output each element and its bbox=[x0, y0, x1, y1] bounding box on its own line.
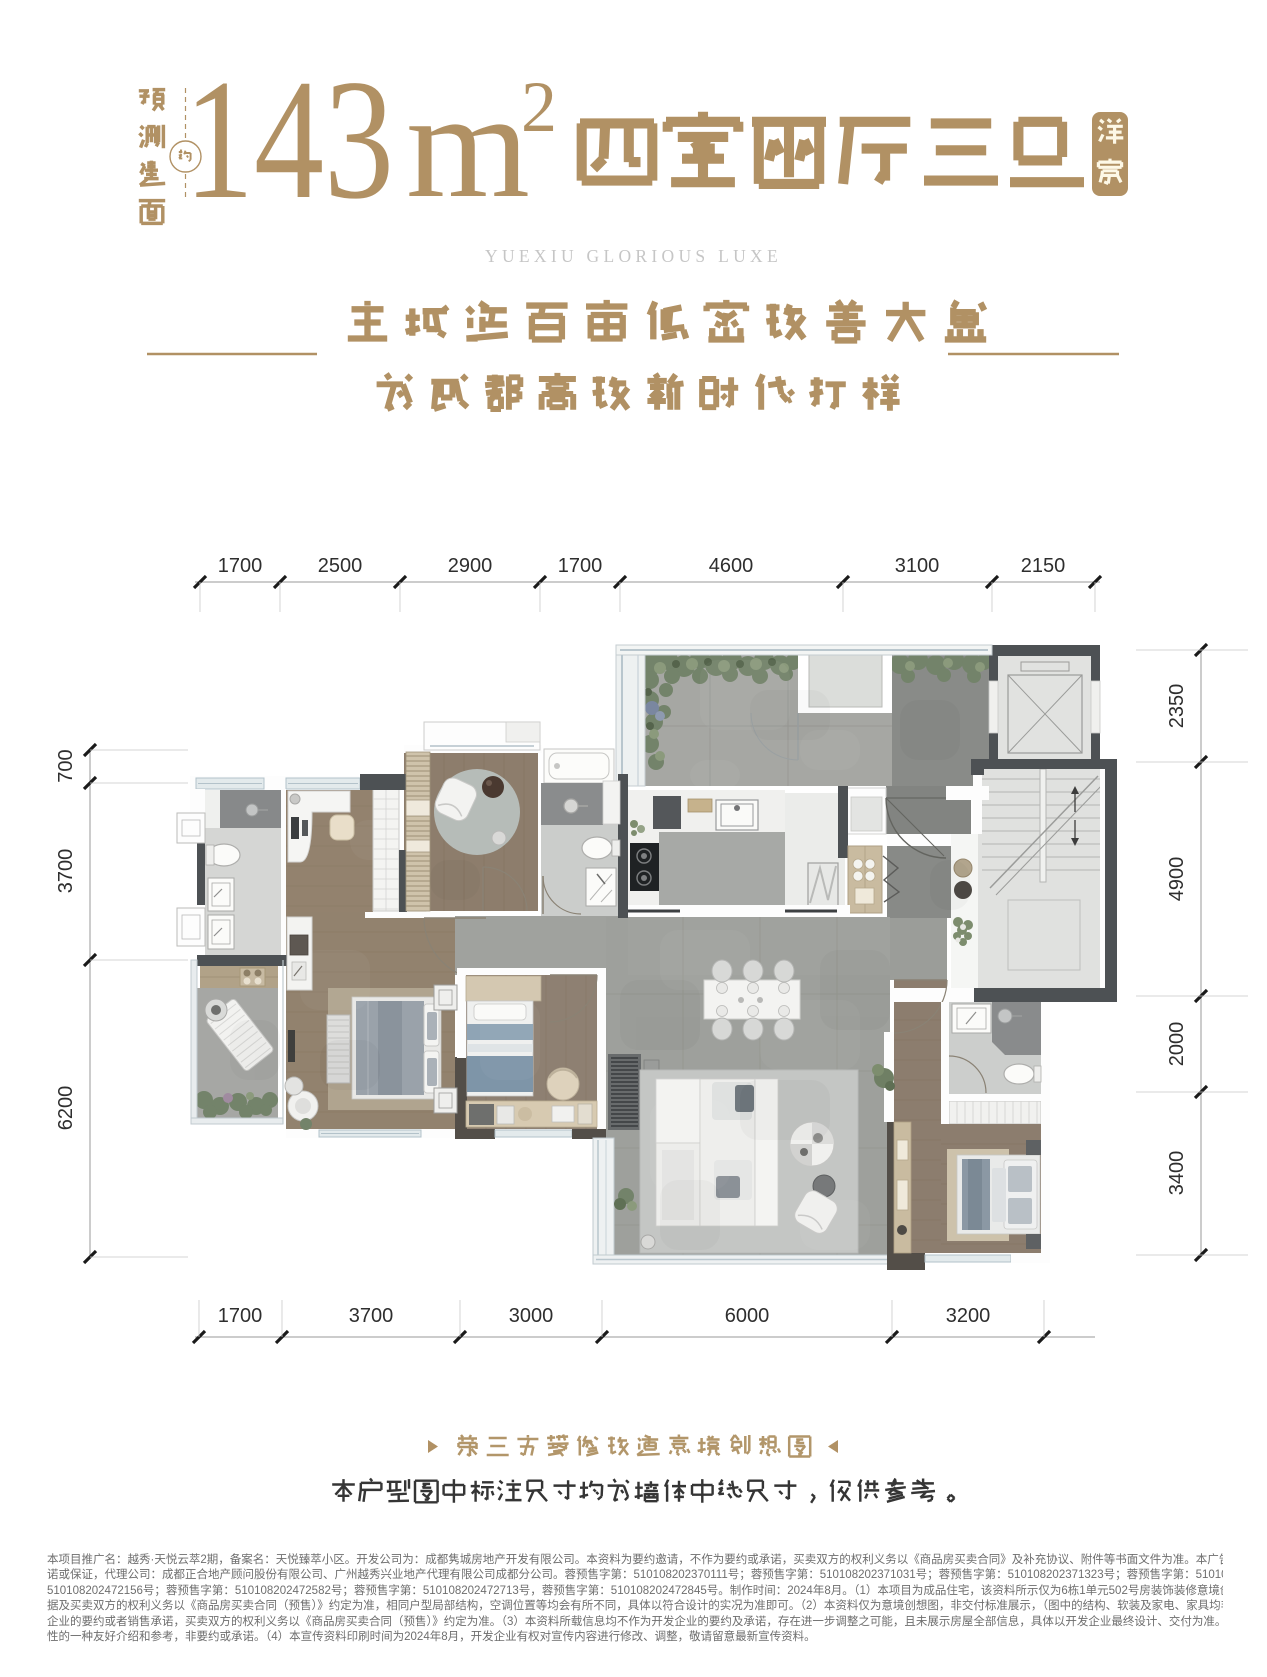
svg-text:2900: 2900 bbox=[448, 555, 493, 577]
svg-text:2500: 2500 bbox=[318, 555, 363, 577]
svg-text:4900: 4900 bbox=[1166, 857, 1188, 902]
svg-text:6200: 6200 bbox=[55, 1086, 77, 1131]
svg-text:3200: 3200 bbox=[946, 1305, 991, 1327]
svg-text:2350: 2350 bbox=[1166, 684, 1188, 729]
svg-text:2000: 2000 bbox=[1166, 1022, 1188, 1067]
svg-text:700: 700 bbox=[55, 749, 77, 782]
svg-text:3000: 3000 bbox=[509, 1305, 554, 1327]
svg-text:1700: 1700 bbox=[218, 1305, 263, 1327]
svg-text:1700: 1700 bbox=[218, 555, 263, 577]
svg-text:2150: 2150 bbox=[1021, 555, 1066, 577]
svg-text:4600: 4600 bbox=[709, 555, 754, 577]
svg-text:6000: 6000 bbox=[725, 1305, 770, 1327]
svg-text:3100: 3100 bbox=[895, 555, 940, 577]
svg-text:3700: 3700 bbox=[349, 1305, 394, 1327]
svg-text:3400: 3400 bbox=[1166, 1151, 1188, 1196]
svg-text:1700: 1700 bbox=[558, 555, 603, 577]
svg-text:3700: 3700 bbox=[55, 849, 77, 894]
